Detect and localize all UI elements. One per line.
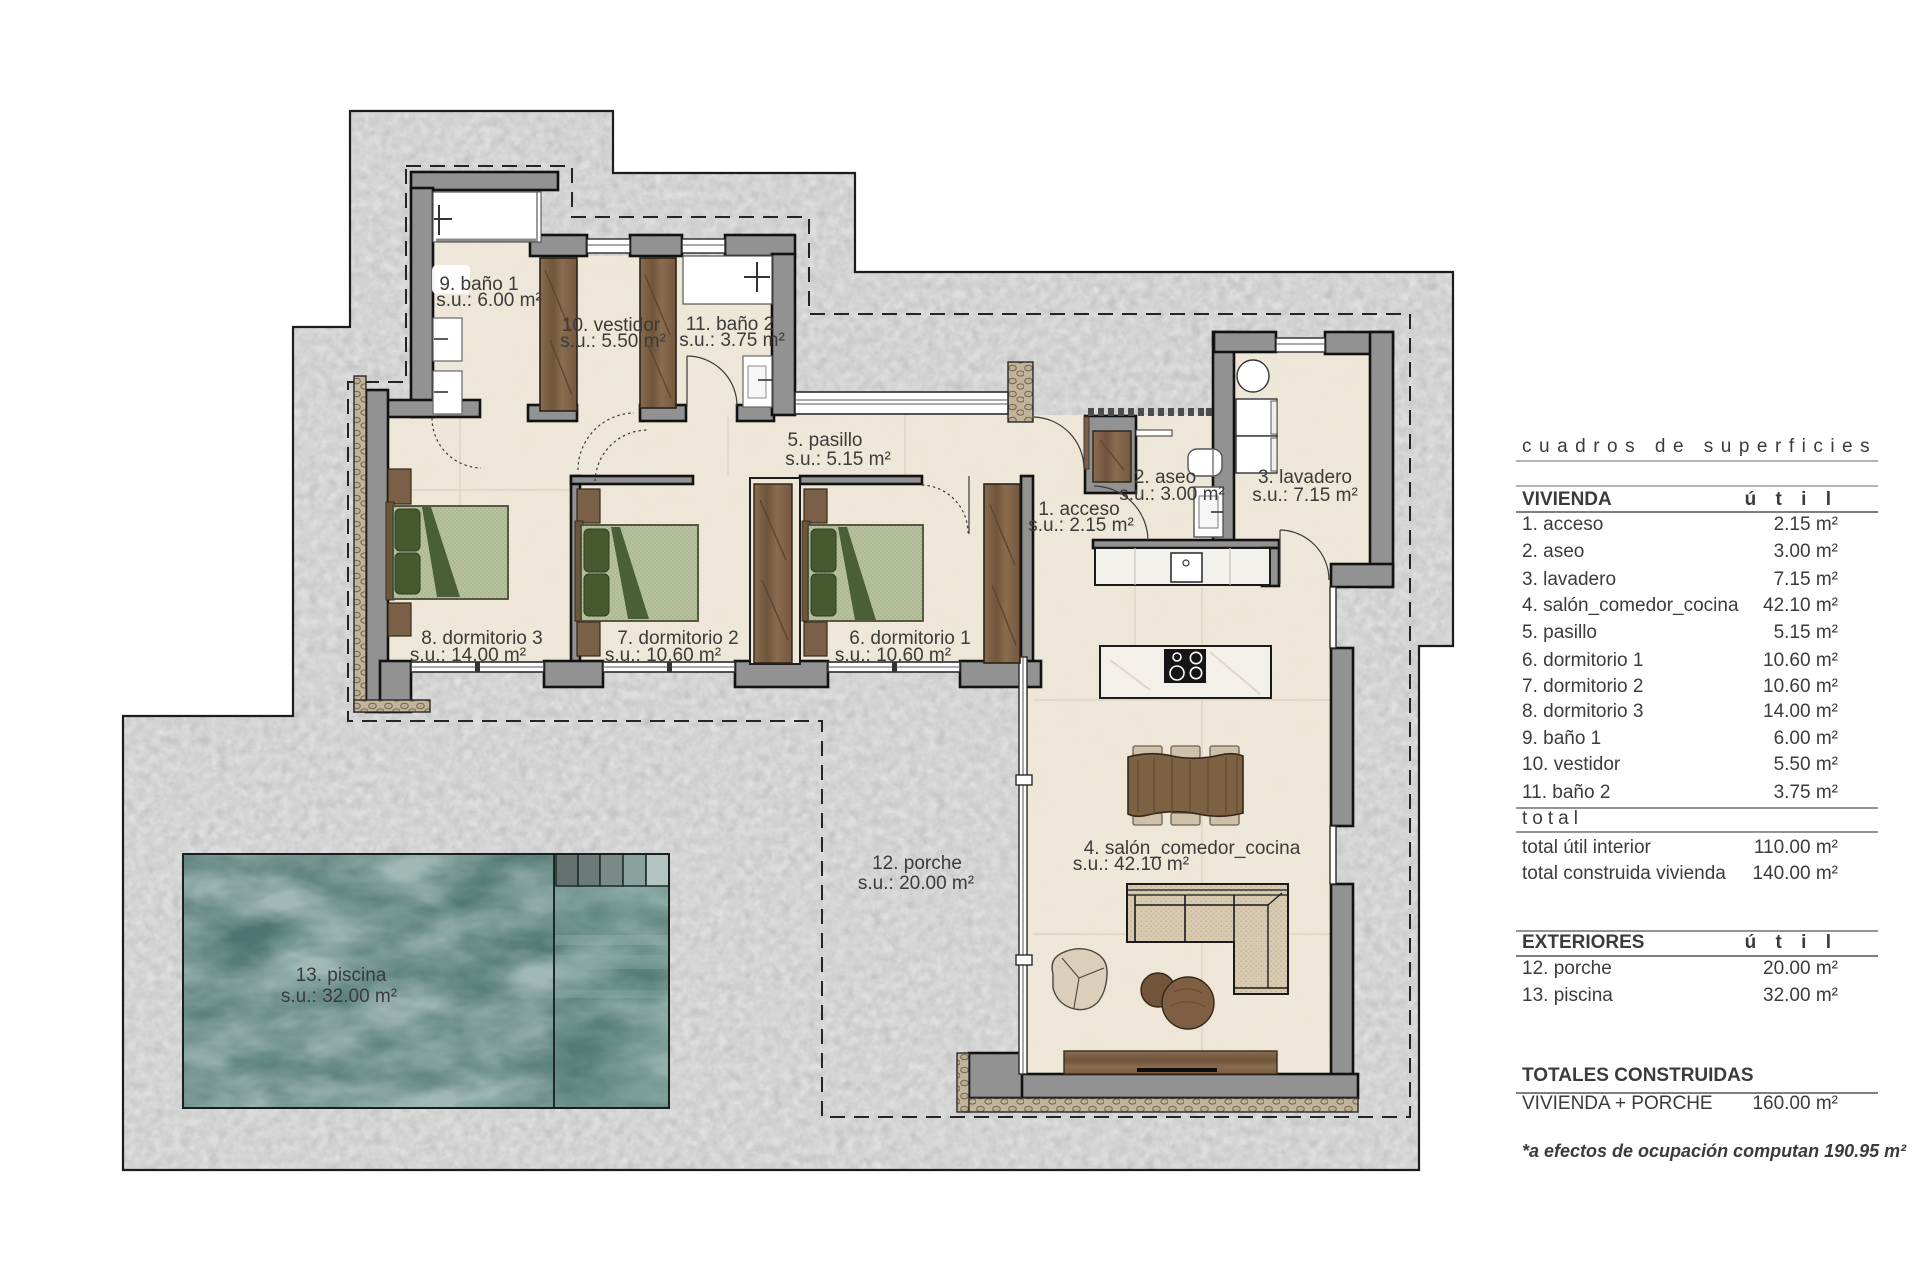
svg-text:10.60 m²: 10.60 m² <box>1763 650 1838 671</box>
svg-text:9. baño 1: 9. baño 1 <box>1522 728 1601 749</box>
svg-text:s.u.: 2.15 m²: s.u.: 2.15 m² <box>1028 515 1134 536</box>
svg-text:14.00 m²: 14.00 m² <box>1763 701 1838 722</box>
svg-text:6.00 m²: 6.00 m² <box>1774 728 1838 749</box>
svg-text:2.15 m²: 2.15 m² <box>1774 514 1838 535</box>
svg-text:5.15 m²: 5.15 m² <box>1774 622 1838 643</box>
svg-text:8. dormitorio 3: 8. dormitorio 3 <box>1522 701 1643 722</box>
svg-text:1. acceso: 1. acceso <box>1522 514 1603 535</box>
svg-text:VIVIENDA + PORCHE: VIVIENDA + PORCHE <box>1522 1093 1713 1114</box>
svg-text:s.u.: 10.60 m²: s.u.: 10.60 m² <box>605 645 721 666</box>
svg-text:s.u.: 42.10 m²: s.u.: 42.10 m² <box>1073 854 1189 875</box>
svg-text:ú t i l: ú t i l <box>1745 932 1838 953</box>
svg-text:20.00 m²: 20.00 m² <box>1763 958 1838 979</box>
svg-text:ú t i l: ú t i l <box>1745 489 1838 510</box>
svg-text:s.u.: 5.50 m²: s.u.: 5.50 m² <box>560 331 666 352</box>
svg-text:2. aseo: 2. aseo <box>1522 541 1584 562</box>
svg-text:140.00 m²: 140.00 m² <box>1752 863 1838 884</box>
svg-text:*a efectos de ocupación comput: *a efectos de ocupación computan 190.95 … <box>1522 1141 1907 1161</box>
svg-text:11. baño 2: 11. baño 2 <box>1522 782 1610 803</box>
svg-text:s.u.: 3.00 m²: s.u.: 3.00 m² <box>1119 484 1225 505</box>
svg-text:TOTALES CONSTRUIDAS: TOTALES CONSTRUIDAS <box>1522 1065 1754 1086</box>
svg-text:s.u.: 6.00 m²: s.u.: 6.00 m² <box>436 290 542 311</box>
svg-text:10. vestidor: 10. vestidor <box>1522 754 1621 775</box>
svg-text:4. salón_comedor_cocina: 4. salón_comedor_cocina <box>1522 595 1739 616</box>
svg-text:12. porche: 12. porche <box>1522 958 1612 979</box>
svg-text:s.u.: 5.15 m²: s.u.: 5.15 m² <box>785 449 891 470</box>
svg-text:7.15 m²: 7.15 m² <box>1774 569 1838 590</box>
svg-text:42.10 m²: 42.10 m² <box>1763 595 1838 616</box>
svg-text:cuadros de superficies: cuadros de superficies <box>1522 436 1877 457</box>
svg-text:10.60 m²: 10.60 m² <box>1763 676 1838 697</box>
svg-text:13. piscina: 13. piscina <box>1522 985 1613 1006</box>
svg-text:5. pasillo: 5. pasillo <box>1522 622 1597 643</box>
svg-text:3.00 m²: 3.00 m² <box>1774 541 1838 562</box>
svg-text:13. piscina: 13. piscina <box>296 965 387 986</box>
svg-text:total construida vivienda: total construida vivienda <box>1522 863 1726 884</box>
svg-text:EXTERIORES: EXTERIORES <box>1522 932 1644 953</box>
svg-text:VIVIENDA: VIVIENDA <box>1522 489 1612 510</box>
svg-text:6. dormitorio 1: 6. dormitorio 1 <box>1522 650 1643 671</box>
svg-text:s.u.: 3.75 m²: s.u.: 3.75 m² <box>679 330 785 351</box>
svg-text:160.00 m²: 160.00 m² <box>1752 1093 1838 1114</box>
svg-text:12. porche: 12. porche <box>872 853 962 874</box>
svg-text:total útil interior: total útil interior <box>1522 837 1652 858</box>
svg-text:110.00 m²: 110.00 m² <box>1754 837 1838 858</box>
svg-text:32.00 m²: 32.00 m² <box>1763 985 1838 1006</box>
svg-text:7. dormitorio 2: 7. dormitorio 2 <box>1522 676 1643 697</box>
svg-text:3.75 m²: 3.75 m² <box>1774 782 1838 803</box>
svg-text:s.u.: 20.00 m²: s.u.: 20.00 m² <box>858 873 974 894</box>
svg-text:total: total <box>1522 808 1583 829</box>
svg-text:s.u.: 14.00 m²: s.u.: 14.00 m² <box>410 645 526 666</box>
svg-text:s.u.: 10.60 m²: s.u.: 10.60 m² <box>835 645 951 666</box>
svg-text:5. pasillo: 5. pasillo <box>788 430 863 451</box>
svg-text:s.u.: 7.15 m²: s.u.: 7.15 m² <box>1252 485 1358 506</box>
svg-text:s.u.: 32.00 m²: s.u.: 32.00 m² <box>281 986 397 1007</box>
svg-text:5.50 m²: 5.50 m² <box>1774 754 1838 775</box>
svg-text:3. lavadero: 3. lavadero <box>1522 569 1616 590</box>
